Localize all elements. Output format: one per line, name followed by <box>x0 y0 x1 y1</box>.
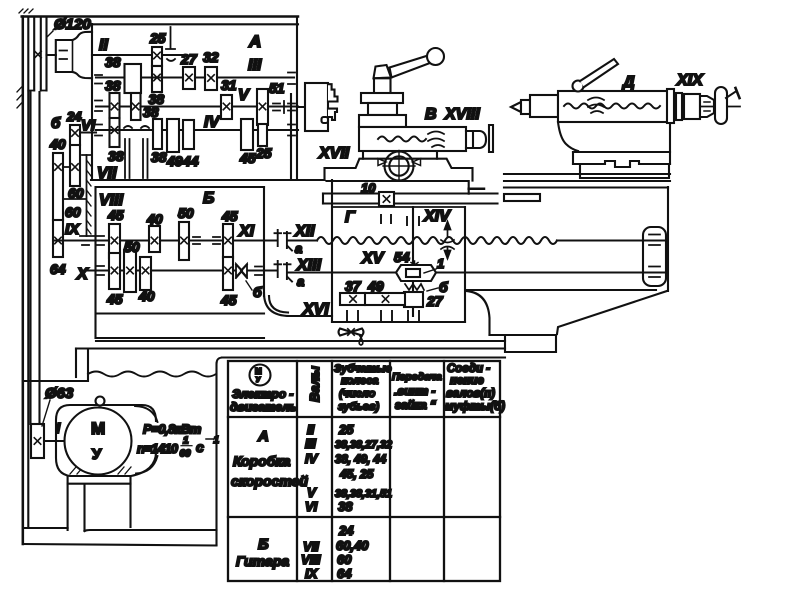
svg-text:б: б <box>51 115 61 132</box>
svg-text:50: 50 <box>124 239 140 255</box>
svg-text:II: II <box>99 37 108 54</box>
svg-text:IV: IV <box>305 451 319 466</box>
svg-text:(число: (число <box>339 388 376 400</box>
svg-text:валов(п): валов(п) <box>446 388 495 400</box>
svg-text:50: 50 <box>178 205 194 221</box>
svg-text:Б: Б <box>258 536 269 553</box>
svg-text:II: II <box>307 422 315 437</box>
svg-text:Ø120: Ø120 <box>54 16 91 33</box>
svg-text:Д: Д <box>621 74 635 91</box>
svg-text:31: 31 <box>221 77 237 93</box>
svg-text:10: 10 <box>361 181 376 196</box>
svg-text:51: 51 <box>269 80 285 96</box>
svg-text:нение: нение <box>450 375 484 387</box>
svg-text:Ø63: Ø63 <box>45 385 74 402</box>
svg-text:40: 40 <box>49 136 66 152</box>
svg-text:Зубчатые: Зубчатые <box>334 363 392 375</box>
svg-text:25: 25 <box>338 422 354 437</box>
svg-text:38: 38 <box>143 104 159 120</box>
svg-text:64: 64 <box>50 261 66 277</box>
svg-text:1: 1 <box>214 435 220 446</box>
svg-text:Гитара: Гитара <box>236 553 289 569</box>
svg-text:IV: IV <box>204 114 220 131</box>
svg-text:У: У <box>92 446 102 463</box>
svg-text:25: 25 <box>255 145 272 161</box>
svg-text:38: 38 <box>151 149 167 165</box>
svg-text:Б: Б <box>203 190 214 207</box>
svg-text:IX: IX <box>65 221 80 238</box>
svg-text:44: 44 <box>182 153 199 169</box>
svg-text:муфты(б): муфты(б) <box>445 401 505 413</box>
svg-text:А: А <box>257 428 269 445</box>
svg-text:гайка “: гайка “ <box>395 400 436 412</box>
svg-text:27: 27 <box>180 51 198 67</box>
svg-text:зубьев): зубьев) <box>338 401 380 413</box>
svg-text:скоростей: скоростей <box>231 473 308 489</box>
svg-text:n=1410: n=1410 <box>137 441 179 456</box>
svg-text:двигатель: двигатель <box>230 400 297 414</box>
svg-text:1: 1 <box>437 256 444 271</box>
svg-text:37: 37 <box>345 278 362 294</box>
svg-text:38: 38 <box>105 78 121 94</box>
svg-text:XIX: XIX <box>676 72 704 89</box>
svg-text:V: V <box>307 485 317 500</box>
svg-text:45: 45 <box>107 207 124 223</box>
svg-text:27: 27 <box>426 293 444 309</box>
svg-text:X: X <box>76 266 89 283</box>
svg-text:В: В <box>425 106 437 123</box>
svg-text:a: a <box>297 274 304 289</box>
svg-text:38: 38 <box>105 54 121 70</box>
svg-text:XI: XI <box>238 223 255 240</box>
svg-text:Валы: Валы <box>307 366 322 402</box>
svg-text:XII: XII <box>294 223 315 240</box>
svg-text:XVII: XVII <box>318 145 350 162</box>
svg-text:60: 60 <box>180 449 192 460</box>
svg-text:60: 60 <box>337 552 352 567</box>
svg-text:VIII: VIII <box>301 552 321 567</box>
svg-text:24: 24 <box>66 109 82 124</box>
svg-text:М: М <box>255 367 262 376</box>
svg-text:XVI: XVI <box>302 301 329 318</box>
svg-text:38, 49, 44: 38, 49, 44 <box>335 454 387 466</box>
svg-text:45: 45 <box>239 150 256 166</box>
svg-text:c: c <box>196 439 204 455</box>
svg-text:45: 45 <box>106 291 123 307</box>
svg-text:VI: VI <box>81 117 96 134</box>
svg-text:a: a <box>295 241 302 256</box>
svg-text:64: 64 <box>337 566 352 581</box>
svg-text:P=0,8кВт: P=0,8кВт <box>143 422 202 437</box>
svg-text:38,38,27,32: 38,38,27,32 <box>335 439 392 451</box>
svg-text:32: 32 <box>203 49 219 65</box>
svg-text:VI: VI <box>305 499 318 514</box>
svg-text:III: III <box>248 57 262 74</box>
svg-text:45: 45 <box>220 292 237 308</box>
svg-text:III: III <box>305 436 316 451</box>
svg-text:25: 25 <box>149 30 166 46</box>
svg-text:Коробка: Коробка <box>233 453 291 469</box>
svg-text:V: V <box>238 87 250 104</box>
svg-text:IX: IX <box>305 566 319 581</box>
svg-text:У: У <box>256 377 261 384</box>
svg-text:.винт -: .винт - <box>394 386 436 398</box>
svg-text:60: 60 <box>68 185 84 201</box>
svg-text:60: 60 <box>65 204 81 220</box>
svg-text:45, 25: 45, 25 <box>339 467 374 481</box>
svg-text:38: 38 <box>338 499 353 514</box>
svg-text:XVIII: XVIII <box>444 106 480 123</box>
svg-text:49: 49 <box>367 278 384 294</box>
svg-text:б: б <box>253 284 262 300</box>
svg-text:A: A <box>248 32 261 51</box>
svg-text:М: М <box>91 419 105 438</box>
svg-text:40: 40 <box>138 288 155 304</box>
svg-text:Г: Г <box>345 209 356 226</box>
svg-text:24: 24 <box>338 523 354 538</box>
svg-text:40: 40 <box>146 211 163 227</box>
svg-text:45: 45 <box>221 208 238 224</box>
svg-text:38: 38 <box>108 148 124 164</box>
svg-text:Передача: Передача <box>392 371 442 383</box>
svg-text:54: 54 <box>394 249 410 265</box>
svg-text:колеса: колеса <box>341 375 378 387</box>
svg-text:VII: VII <box>97 165 117 182</box>
svg-text:Электро -: Электро - <box>232 387 293 401</box>
svg-text:1: 1 <box>183 436 189 447</box>
svg-text:Соеди -: Соеди - <box>447 363 490 375</box>
svg-text:XV: XV <box>361 250 385 267</box>
svg-text:60,40: 60,40 <box>336 538 369 553</box>
svg-text:49: 49 <box>166 153 183 169</box>
